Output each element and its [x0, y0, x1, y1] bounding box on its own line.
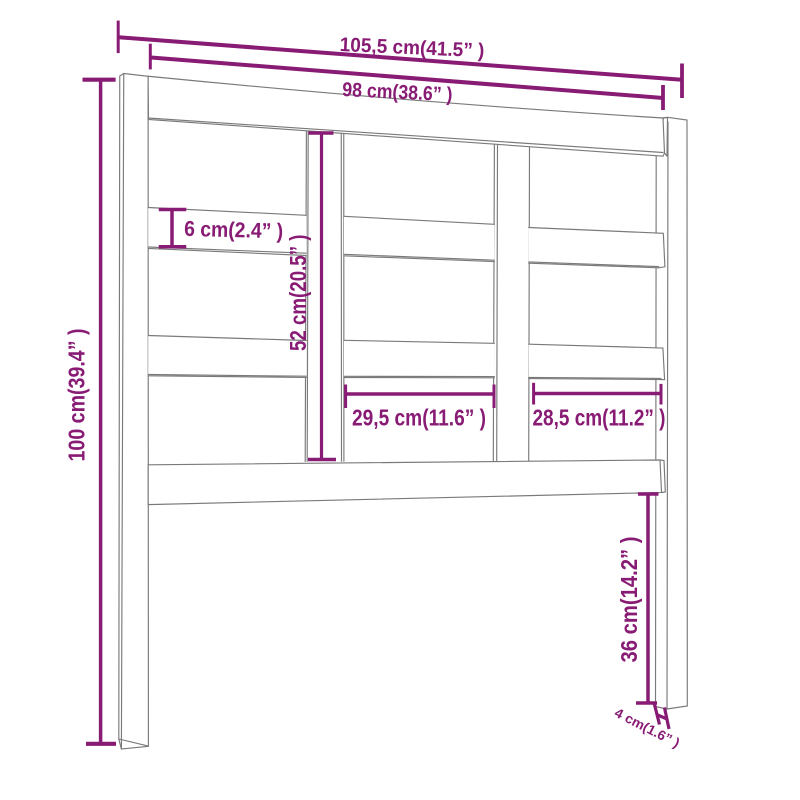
svg-text:6 cm(2.4” ): 6 cm(2.4” ) [184, 217, 284, 244]
svg-text:100 cm(39.4” ): 100 cm(39.4” ) [64, 329, 90, 462]
svg-text:52 cm(20.5” ): 52 cm(20.5” ) [285, 235, 311, 352]
svg-text:28,5 cm(11.2” ): 28,5 cm(11.2” ) [533, 405, 666, 431]
svg-text:36 cm(14.2” ): 36 cm(14.2” ) [616, 537, 642, 663]
svg-text:29,5 cm(11.6” ): 29,5 cm(11.6” ) [352, 405, 486, 431]
